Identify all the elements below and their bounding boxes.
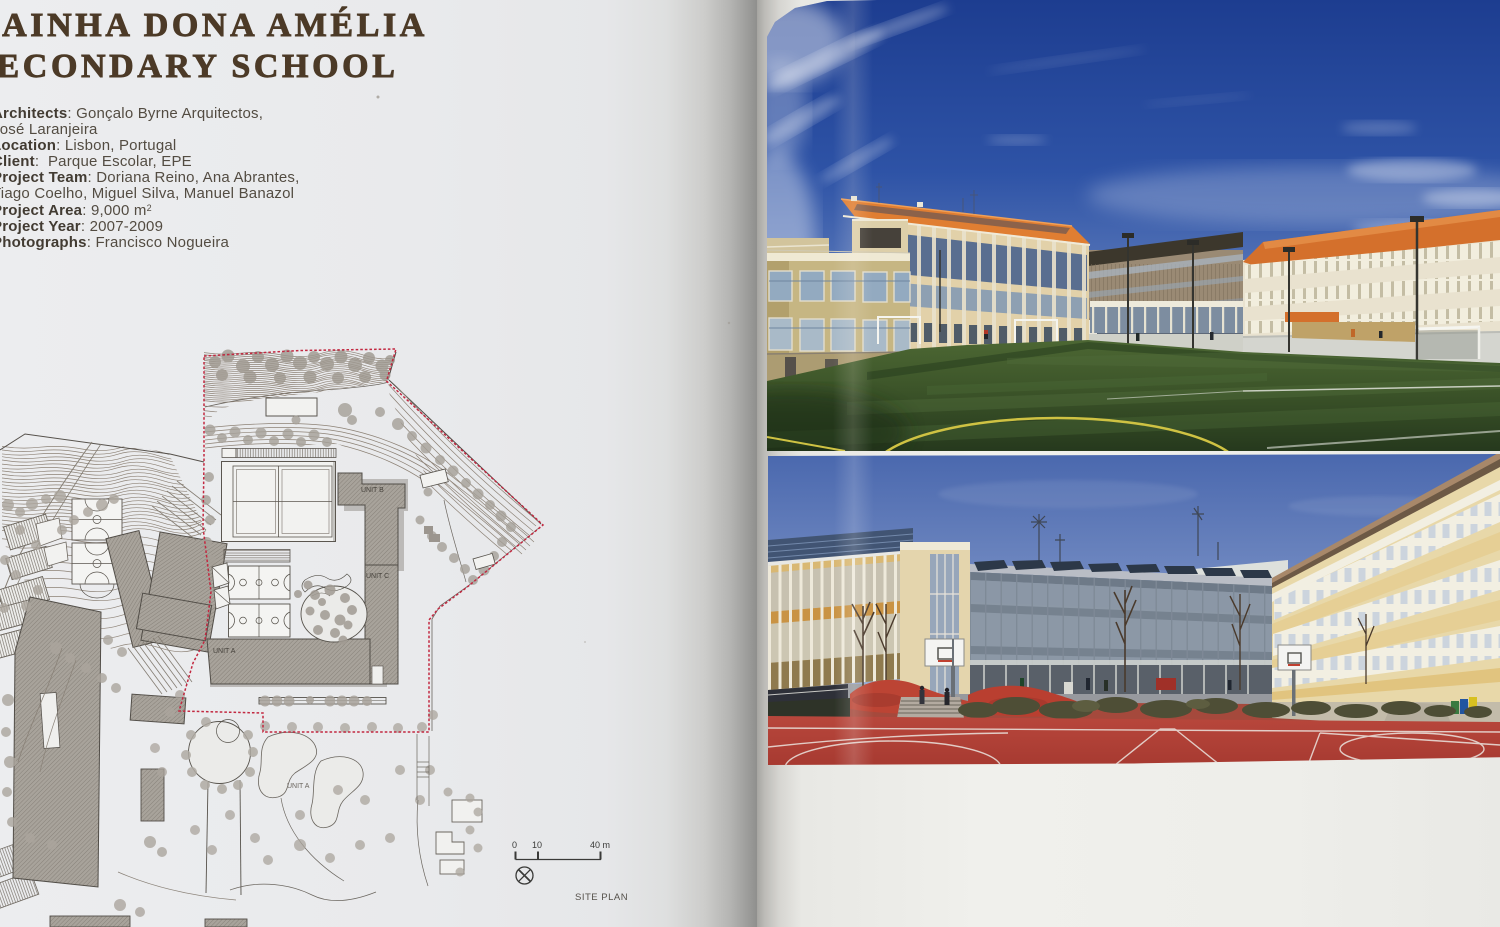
svg-text:UNIT B: UNIT B bbox=[361, 487, 384, 494]
svg-text:SITE PLAN: SITE PLAN bbox=[575, 892, 628, 903]
svg-text:UNIT A: UNIT A bbox=[287, 783, 310, 790]
svg-text:0: 0 bbox=[512, 840, 517, 850]
svg-text:10: 10 bbox=[532, 840, 542, 850]
svg-text:UNIT C: UNIT C bbox=[366, 573, 389, 580]
svg-text:UNIT A: UNIT A bbox=[213, 648, 236, 655]
svg-text:40 m: 40 m bbox=[590, 840, 610, 850]
